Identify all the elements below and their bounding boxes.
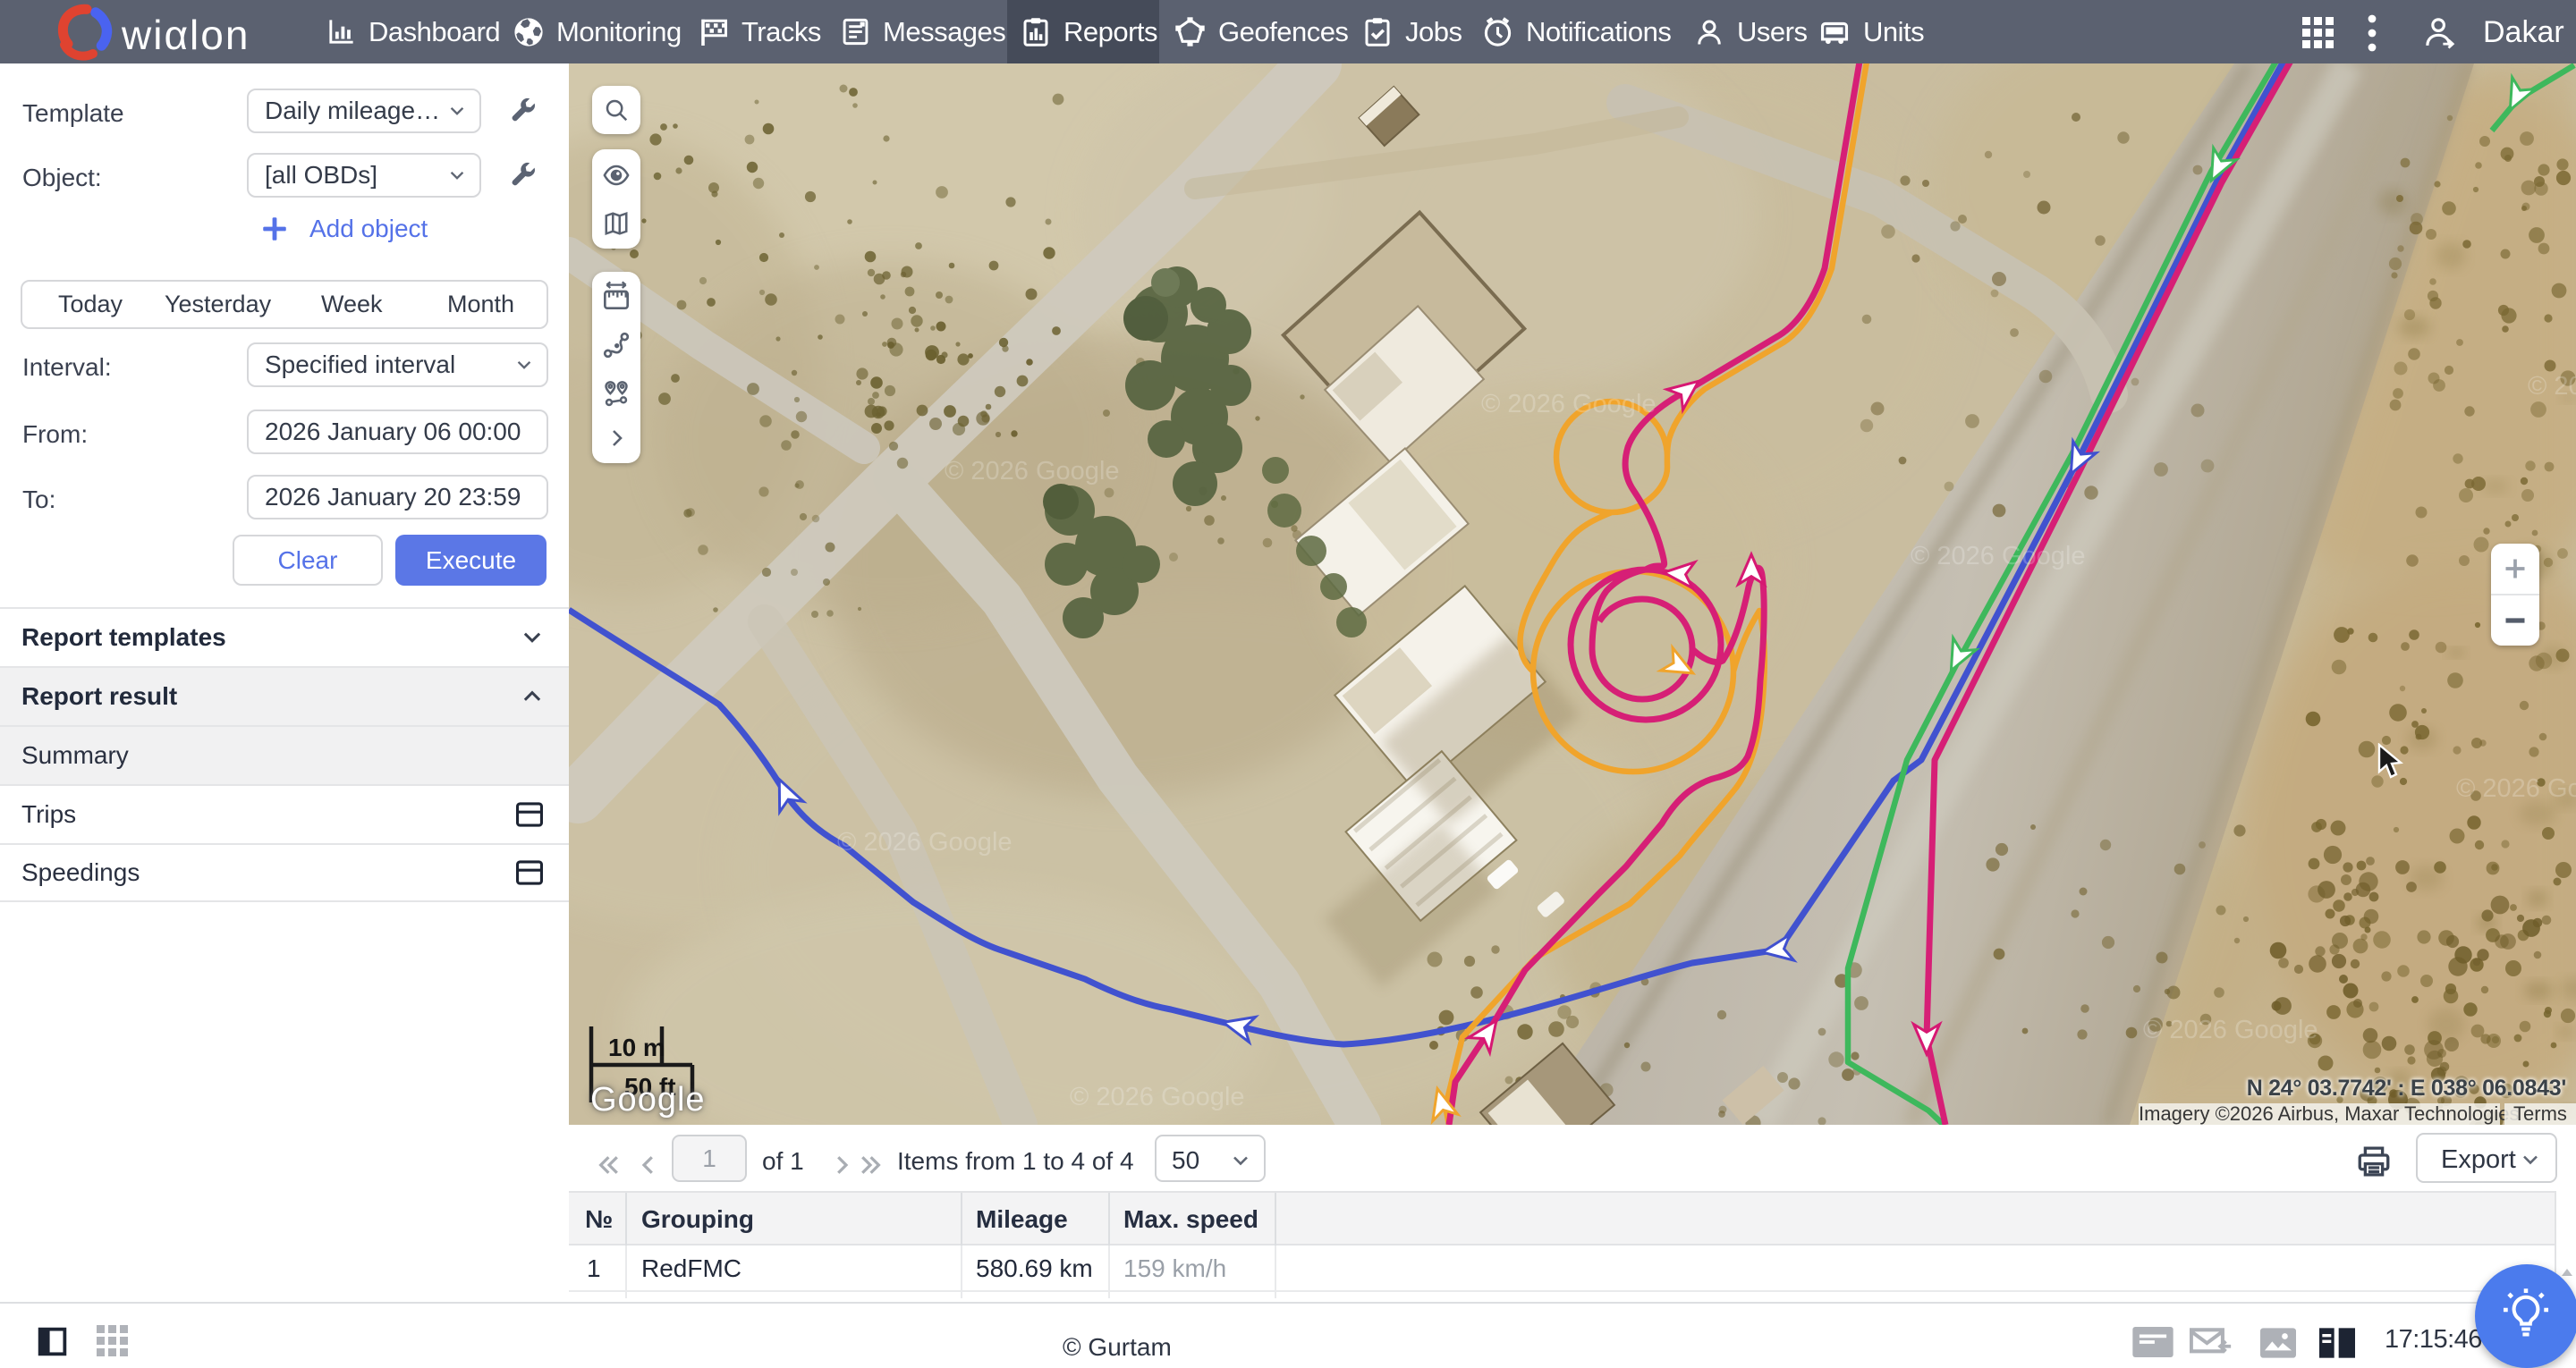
svg-text:© 2026 Google: © 2026 Google bbox=[2528, 372, 2576, 401]
svg-text:© 2026 Google: © 2026 Google bbox=[2456, 774, 2576, 803]
svg-text:© 2026 Google: © 2026 Google bbox=[1070, 1083, 1245, 1111]
svg-text:© 2026 Google: © 2026 Google bbox=[837, 828, 1013, 857]
svg-text:© 2026 Google: © 2026 Google bbox=[2143, 1016, 2318, 1044]
svg-text:© 2026 Google: © 2026 Google bbox=[1911, 542, 2086, 570]
svg-text:© 2026 Google: © 2026 Google bbox=[945, 457, 1120, 486]
svg-text:© 2026 Google: © 2026 Google bbox=[1481, 390, 1657, 418]
